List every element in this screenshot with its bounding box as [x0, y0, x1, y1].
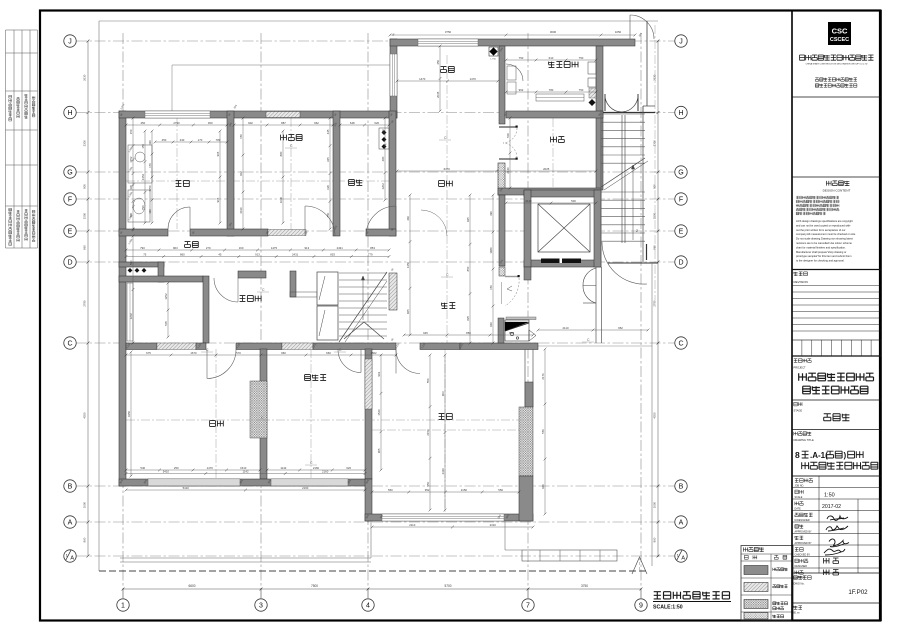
svg-text:620: 620: [346, 466, 351, 470]
svg-text:ACS design drawings specificat: ACS design drawings specifications are c…: [796, 219, 853, 223]
svg-text:APPROVED BY: APPROVED BY: [795, 542, 813, 545]
svg-text:905: 905: [216, 151, 220, 156]
svg-text:430: 430: [129, 185, 133, 190]
svg-text:SCALE: SCALE: [795, 496, 803, 499]
svg-text:540: 540: [140, 466, 145, 470]
svg-text:279: 279: [206, 246, 211, 250]
svg-text:900: 900: [83, 184, 87, 189]
svg-text:STAGE: STAGE: [794, 409, 803, 413]
svg-text:JOB NO.: JOB NO.: [795, 485, 805, 488]
svg-text:2410: 2410: [441, 468, 445, 475]
svg-text:company.All measurement must b: company.All measurement must be checked …: [796, 232, 856, 236]
svg-text:1520: 1520: [377, 409, 381, 416]
svg-text:.A-1(: .A-1(: [810, 451, 828, 460]
svg-text:952: 952: [618, 326, 623, 330]
svg-text:440: 440: [381, 129, 385, 134]
svg-text:5410: 5410: [163, 470, 170, 474]
svg-text:250: 250: [174, 466, 179, 470]
svg-text:2140: 2140: [506, 167, 510, 174]
svg-text:1470: 1470: [207, 466, 214, 470]
svg-text:430: 430: [148, 140, 152, 145]
svg-text:853: 853: [330, 253, 335, 257]
svg-text:1202: 1202: [381, 183, 385, 190]
svg-text:2017-02: 2017-02: [822, 504, 841, 510]
svg-text:430: 430: [148, 209, 152, 214]
svg-text:6470: 6470: [444, 167, 451, 171]
svg-text:L-750: L-750: [490, 59, 496, 61]
svg-text:A: A: [70, 555, 74, 561]
svg-text:CSC: CSC: [832, 27, 848, 36]
svg-text:H: H: [67, 110, 72, 117]
svg-text:7: 7: [526, 603, 530, 610]
svg-text:675: 675: [146, 351, 151, 355]
svg-text:9: 9: [639, 603, 643, 610]
svg-text:revisions are to be cancelled.: revisions are to be cancelled.Use colour…: [796, 241, 852, 245]
svg-text:SCALE:1:50: SCALE:1:50: [653, 605, 683, 611]
svg-text:850: 850: [466, 266, 470, 271]
svg-text:648: 648: [350, 121, 355, 125]
svg-text:Manufacturer shall prepare"sho: Manufacturer shall prepare"shop drawing …: [796, 250, 847, 254]
svg-text:1250: 1250: [148, 185, 152, 192]
svg-text:1:50: 1:50: [824, 493, 835, 499]
svg-text:660: 660: [326, 351, 331, 355]
svg-text:860: 860: [653, 245, 657, 250]
svg-text:960: 960: [489, 322, 493, 327]
svg-text:645: 645: [326, 129, 330, 134]
svg-text:D: D: [678, 260, 683, 267]
svg-text:750: 750: [519, 56, 524, 60]
svg-text:860: 860: [83, 245, 87, 250]
svg-text:2790: 2790: [653, 300, 657, 307]
svg-text:1350: 1350: [406, 261, 410, 268]
svg-text:B1 ex: B1 ex: [794, 612, 801, 615]
svg-text:902: 902: [239, 171, 243, 176]
svg-text:5700: 5700: [444, 584, 451, 588]
svg-text:2150: 2150: [461, 488, 468, 492]
svg-text:2140: 2140: [525, 199, 532, 203]
svg-text:1000: 1000: [653, 501, 657, 508]
svg-text:550: 550: [388, 488, 393, 492]
svg-text:913: 913: [255, 253, 260, 257]
svg-text:850: 850: [509, 331, 514, 335]
svg-text:450: 450: [140, 121, 145, 125]
svg-text:962: 962: [314, 121, 319, 125]
svg-text:to the designer for checking a: to the designer for checking and approva…: [796, 259, 845, 263]
svg-text:J: J: [68, 39, 72, 46]
svg-text:2025: 2025: [543, 167, 550, 171]
svg-text:790: 790: [129, 212, 133, 217]
svg-text:5410: 5410: [183, 486, 190, 490]
svg-text:DRAWING TITLE: DRAWING TITLE: [794, 438, 814, 442]
svg-text:505: 505: [164, 321, 168, 326]
svg-text:C: C: [678, 341, 683, 348]
svg-text:853: 853: [370, 246, 375, 250]
svg-text:390: 390: [489, 211, 493, 216]
svg-text:590: 590: [129, 260, 133, 265]
svg-text:2790: 2790: [173, 121, 180, 125]
svg-text:2160: 2160: [302, 486, 309, 490]
svg-text:902: 902: [248, 121, 253, 125]
svg-text:2790: 2790: [83, 300, 87, 307]
svg-text:779: 779: [368, 253, 373, 257]
svg-text:F: F: [679, 197, 683, 204]
svg-text:860: 860: [180, 253, 185, 257]
svg-text:E: E: [68, 229, 73, 236]
svg-text:150: 150: [489, 285, 493, 290]
svg-text:780: 780: [549, 88, 554, 92]
svg-text:945: 945: [423, 331, 428, 335]
svg-text:3300: 3300: [653, 140, 657, 147]
svg-text:780: 780: [216, 138, 221, 142]
svg-text:2630: 2630: [653, 74, 657, 81]
svg-text:3300: 3300: [83, 140, 87, 147]
svg-text:900: 900: [653, 184, 657, 189]
svg-text:8: 8: [795, 450, 800, 460]
svg-text:H: H: [678, 110, 683, 117]
svg-text:DESIGN CONTENT: DESIGN CONTENT: [823, 189, 851, 193]
svg-text:860: 860: [653, 537, 657, 542]
svg-text:1030: 1030: [279, 196, 283, 203]
svg-text:1: 1: [121, 603, 125, 610]
svg-text:1475: 1475: [271, 246, 278, 250]
svg-text:155: 155: [141, 144, 145, 149]
svg-text:3750: 3750: [445, 30, 452, 34]
svg-text:1: 1: [677, 554, 679, 558]
svg-text:860: 860: [83, 537, 87, 542]
svg-text:1500: 1500: [653, 212, 657, 219]
svg-text:APPROVED BY: APPROVED BY: [795, 531, 813, 534]
svg-text:913: 913: [304, 246, 309, 250]
svg-text:CSCEC: CSCEC: [830, 37, 849, 43]
svg-text:4350: 4350: [127, 410, 131, 417]
svg-text:1050: 1050: [615, 30, 622, 34]
svg-text:3: 3: [259, 603, 263, 610]
svg-text:880: 880: [279, 151, 283, 156]
svg-text:DWG No.: DWG No.: [794, 582, 805, 586]
svg-text:1000: 1000: [83, 501, 87, 508]
svg-text:45: 45: [218, 253, 222, 257]
svg-text:825: 825: [406, 309, 410, 314]
svg-text:620: 620: [326, 185, 330, 190]
svg-text:500: 500: [506, 133, 510, 138]
svg-text:790: 790: [141, 205, 145, 210]
svg-text:2310: 2310: [490, 523, 497, 527]
svg-text:1142: 1142: [242, 470, 248, 474]
svg-text:550: 550: [498, 488, 503, 492]
svg-text:2160: 2160: [322, 470, 329, 474]
svg-text:150: 150: [239, 134, 243, 139]
svg-text:1F.P02: 1F.P02: [848, 589, 868, 596]
svg-text:M.DESIGNER: M.DESIGNER: [795, 519, 810, 522]
svg-text:610: 610: [549, 56, 554, 60]
svg-text:G: G: [678, 170, 683, 177]
svg-text:D: D: [67, 260, 72, 267]
svg-text:DESIGNER: DESIGNER: [795, 565, 808, 568]
svg-text:1202: 1202: [129, 313, 133, 320]
svg-text:CHINA STATE CONSTRUCTION DECOR: CHINA STATE CONSTRUCTION DECORATION GROU…: [806, 63, 868, 66]
svg-text:1142: 1142: [280, 466, 286, 470]
svg-text:3010: 3010: [239, 207, 243, 214]
svg-text:962: 962: [519, 88, 524, 92]
svg-text:Do not scale drawing.Drawing n: Do not scale drawing.Drawing non showing…: [796, 237, 853, 241]
svg-text:C: C: [67, 341, 72, 348]
svg-text:1470: 1470: [419, 77, 426, 81]
svg-text:out the prior written form acc: out the prior written form acceptance of…: [796, 228, 846, 232]
svg-text:945: 945: [466, 217, 470, 222]
svg-text:450: 450: [208, 121, 213, 125]
svg-text:3000: 3000: [550, 30, 557, 34]
svg-text:960: 960: [541, 484, 545, 489]
svg-text:960: 960: [281, 351, 286, 355]
svg-text:952: 952: [425, 488, 430, 492]
svg-text:790: 790: [140, 246, 145, 250]
svg-text:2431: 2431: [337, 246, 344, 250]
svg-text:DATE: DATE: [795, 508, 802, 511]
svg-text:1252: 1252: [164, 293, 168, 300]
svg-text:1470: 1470: [470, 77, 477, 81]
svg-text:170: 170: [198, 138, 203, 142]
svg-text:750: 750: [579, 88, 584, 92]
svg-text:2110: 2110: [409, 523, 415, 527]
svg-text:550: 550: [426, 378, 430, 383]
svg-text:6600: 6600: [188, 584, 195, 588]
svg-text:1: 1: [66, 554, 68, 558]
svg-text:1352: 1352: [141, 173, 145, 180]
svg-text:1500: 1500: [83, 212, 87, 219]
svg-text:2110: 2110: [562, 326, 568, 330]
svg-text:A: A: [681, 555, 685, 561]
svg-text:570: 570: [236, 351, 241, 355]
svg-text:2: 2: [636, 229, 638, 233]
svg-text:2035: 2035: [436, 91, 440, 98]
svg-text:prototype samples"for this ite: prototype samples"for this item and subm…: [796, 254, 851, 258]
svg-text:905: 905: [216, 197, 220, 202]
svg-text:G: G: [67, 170, 72, 177]
svg-text:550: 550: [541, 429, 545, 434]
svg-text:887: 887: [281, 121, 286, 125]
svg-text:2150: 2150: [426, 429, 430, 436]
svg-text:1802: 1802: [370, 351, 377, 355]
svg-text:1670: 1670: [190, 351, 197, 355]
svg-text:2630: 2630: [83, 74, 87, 81]
svg-text:620: 620: [374, 121, 379, 125]
svg-text:7500: 7500: [311, 584, 318, 588]
svg-text:1352: 1352: [129, 156, 133, 163]
svg-text:480: 480: [381, 156, 385, 161]
svg-text:4: 4: [366, 603, 370, 610]
svg-text:450: 450: [436, 59, 440, 64]
svg-text:550: 550: [426, 481, 430, 486]
svg-text:E: E: [679, 229, 684, 236]
svg-text:and can not be used copied or: and can not be used copied or reproduced…: [796, 223, 851, 227]
svg-text:430: 430: [180, 138, 185, 142]
svg-text:450: 450: [162, 138, 167, 142]
svg-text:PROJECT: PROJECT: [794, 366, 807, 370]
svg-text:2431: 2431: [292, 253, 299, 257]
svg-text:750: 750: [579, 56, 584, 60]
svg-text:CHECKED BY: CHECKED BY: [795, 554, 811, 557]
svg-text:460: 460: [406, 216, 410, 221]
svg-text:chart for material finishes an: chart for material finishes and specific…: [796, 245, 846, 249]
svg-text:2160: 2160: [313, 466, 320, 470]
svg-text:963: 963: [173, 246, 178, 250]
svg-text:905: 905: [377, 448, 381, 453]
svg-text:REVISION: REVISION: [794, 280, 808, 284]
svg-text:2170: 2170: [541, 373, 545, 380]
svg-text:750: 750: [326, 212, 330, 217]
svg-text:903: 903: [441, 391, 445, 396]
svg-text:825: 825: [466, 316, 470, 321]
svg-text:A: A: [679, 520, 684, 527]
svg-text:F: F: [68, 197, 72, 204]
svg-text:160: 160: [239, 246, 244, 250]
svg-text:B: B: [68, 484, 73, 491]
svg-text:170: 170: [148, 163, 152, 168]
svg-text:4350: 4350: [83, 412, 87, 419]
svg-text:3750: 3750: [581, 584, 588, 588]
svg-text:75: 75: [143, 253, 147, 257]
svg-text:903: 903: [377, 371, 381, 376]
svg-text:500: 500: [571, 199, 576, 203]
svg-text:850: 850: [466, 331, 471, 335]
svg-text:B: B: [679, 484, 684, 491]
svg-text:1980: 1980: [489, 247, 493, 254]
svg-text:325: 325: [326, 157, 330, 162]
svg-text:150: 150: [129, 129, 133, 134]
svg-text:A: A: [68, 520, 73, 527]
svg-text:4350: 4350: [653, 412, 657, 419]
svg-text:J: J: [679, 39, 683, 46]
svg-text:): ): [844, 451, 847, 460]
